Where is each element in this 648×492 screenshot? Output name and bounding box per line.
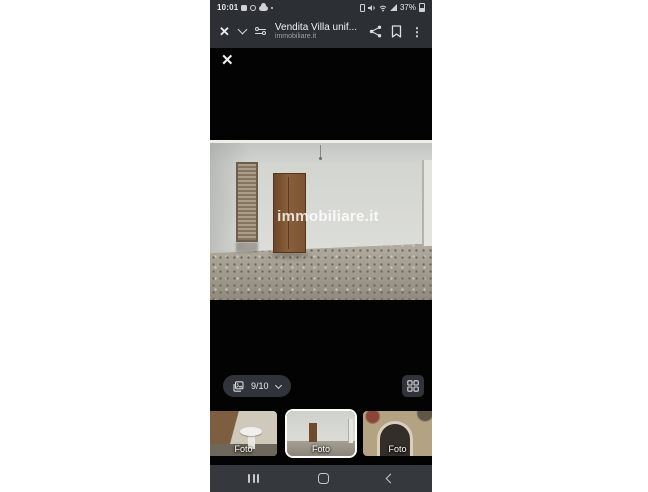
close-gallery-button[interactable]: ✕ xyxy=(221,51,234,69)
bookmark-icon xyxy=(391,25,402,38)
grid-icon xyxy=(407,380,419,392)
page-title-block: Vendita Villa unif... immobiliare.it xyxy=(275,22,360,42)
battery-percent-text: 37% xyxy=(400,3,416,12)
more-notifications-dot-icon xyxy=(271,7,273,9)
close-tab-button[interactable]: ✕ xyxy=(219,24,230,40)
photo-stack-icon xyxy=(233,381,244,392)
status-bar-right: 37% xyxy=(360,3,425,12)
screenshot-notification-icon xyxy=(241,5,247,11)
screenshot-canvas: 10:01 37% ✕ Ve xyxy=(0,0,648,492)
nfc-icon xyxy=(360,4,365,12)
wifi-calling-icon xyxy=(379,4,387,12)
home-button[interactable] xyxy=(318,473,329,484)
back-button[interactable] xyxy=(386,474,396,484)
status-bar: 10:01 37% xyxy=(210,0,432,15)
thumbnail-room-selected[interactable]: Foto xyxy=(285,409,357,458)
app-bar: ✕ Vendita Villa unif... immobiliare.it ⋮ xyxy=(210,15,432,48)
thumbnail-label: Foto xyxy=(287,444,355,454)
photo-viewer: ✕ immobiliare.it 9/10 xyxy=(210,48,432,465)
status-bar-left: 10:01 xyxy=(217,3,273,12)
ceiling-light-wire xyxy=(320,145,321,158)
viewer-controls: 9/10 xyxy=(210,375,432,397)
doorway-right xyxy=(422,160,432,246)
share-icon xyxy=(369,25,382,38)
app-notification-icon xyxy=(250,5,256,11)
thumbnail-label: Foto xyxy=(210,444,277,454)
android-nav-bar xyxy=(210,465,432,492)
recents-button[interactable] xyxy=(248,474,259,483)
page-title: Vendita Villa unif... xyxy=(275,22,360,34)
pedestal-sink-shape xyxy=(240,427,262,436)
cellular-signal-icon xyxy=(390,4,397,11)
bookmark-button[interactable] xyxy=(391,25,402,38)
page-domain: immobiliare.it xyxy=(275,33,360,41)
phone-screen: 10:01 37% ✕ Ve xyxy=(210,0,432,492)
window-shadow xyxy=(236,242,258,252)
clock: 10:01 xyxy=(217,3,238,12)
thumbnail-bathroom[interactable]: Foto xyxy=(210,411,277,456)
window-with-blinds xyxy=(236,162,258,242)
chevron-down-icon[interactable] xyxy=(237,25,247,35)
battery-icon xyxy=(419,3,425,12)
weather-cloud-icon xyxy=(259,6,268,11)
counter-chevron-down-icon xyxy=(274,381,281,388)
photo-counter-dropdown[interactable]: 9/10 xyxy=(223,375,291,397)
thumbnail-strip: Foto Foto Foto xyxy=(210,408,432,458)
tune-sliders-icon[interactable] xyxy=(255,29,266,34)
overflow-menu-button[interactable]: ⋮ xyxy=(411,25,423,39)
watermark-text: immobiliare.it xyxy=(210,208,432,225)
sound-mode-icon xyxy=(368,4,376,12)
listing-photo[interactable]: immobiliare.it xyxy=(210,140,432,300)
thumbnail-fireplace[interactable]: Foto xyxy=(363,411,432,456)
grid-view-button[interactable] xyxy=(402,375,424,397)
photo-counter-text: 9/10 xyxy=(251,381,269,391)
thumbnail-label: Foto xyxy=(363,444,432,454)
share-button[interactable] xyxy=(369,25,382,38)
